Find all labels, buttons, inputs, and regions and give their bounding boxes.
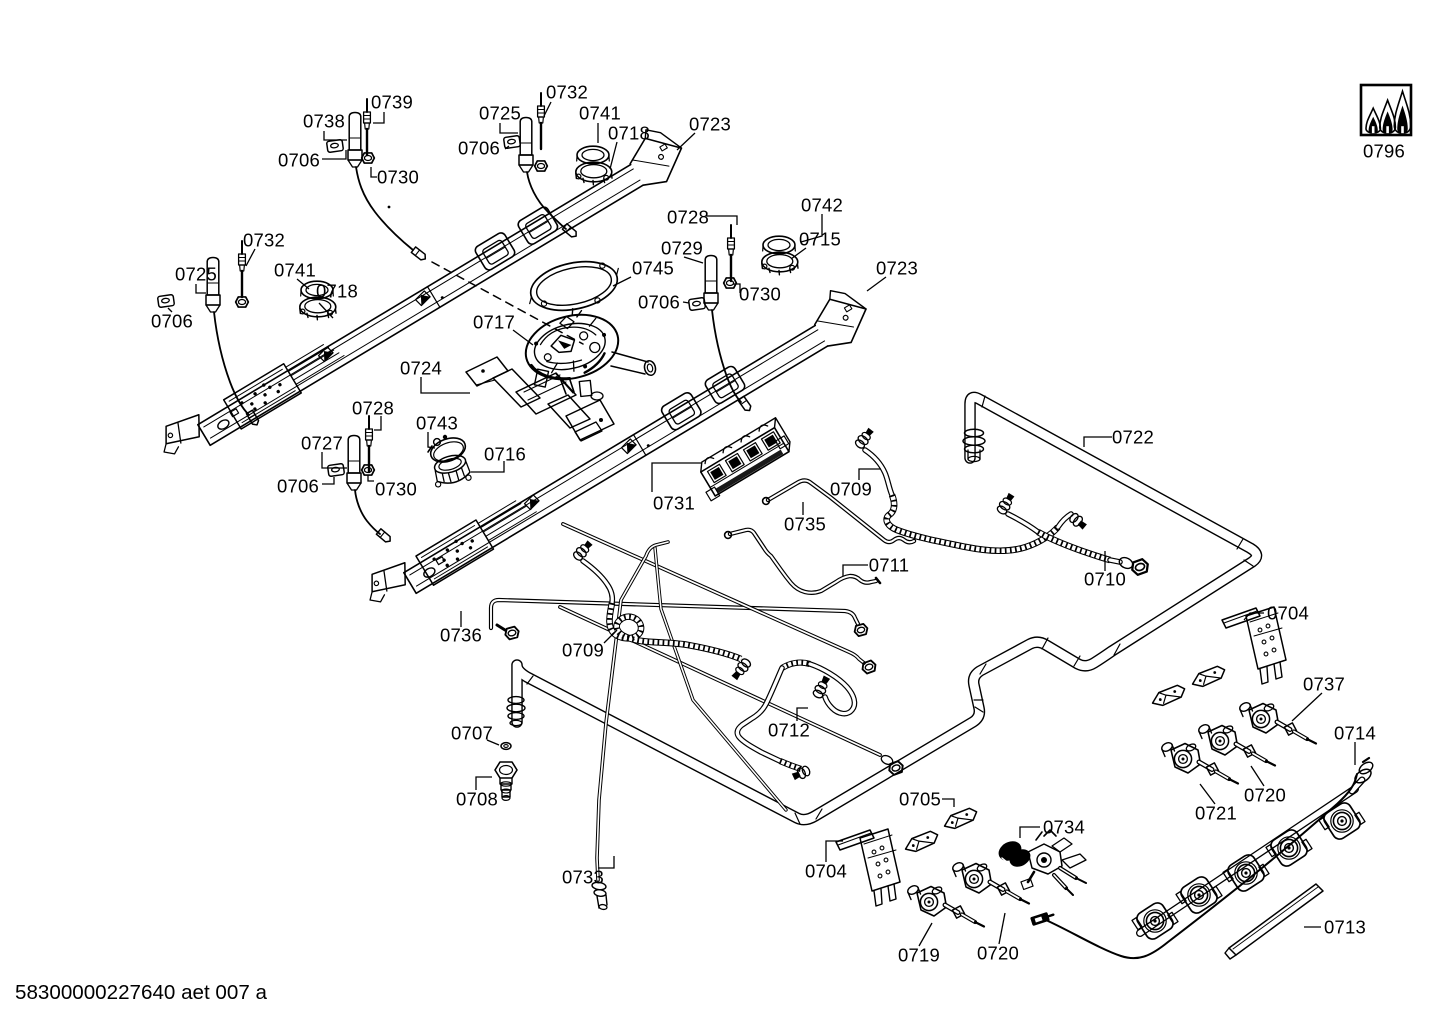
svg-text:0741: 0741: [274, 260, 316, 281]
svg-text:0732: 0732: [243, 230, 285, 251]
svg-text:0734: 0734: [1043, 817, 1085, 838]
svg-text:0704: 0704: [805, 861, 847, 882]
svg-text:0706: 0706: [458, 138, 500, 159]
svg-text:0730: 0730: [377, 167, 419, 188]
svg-text:0718: 0718: [316, 281, 358, 302]
svg-text:0713: 0713: [1324, 917, 1366, 938]
svg-text:0725: 0725: [175, 264, 217, 285]
svg-text:0720: 0720: [977, 943, 1019, 964]
svg-text:0717: 0717: [473, 312, 515, 333]
svg-text:0732: 0732: [546, 82, 588, 103]
svg-text:0735: 0735: [784, 514, 826, 535]
svg-text:0741: 0741: [579, 103, 621, 124]
svg-text:0742: 0742: [801, 195, 843, 216]
svg-text:0708: 0708: [456, 789, 498, 810]
svg-text:0711: 0711: [869, 555, 910, 576]
svg-text:0721: 0721: [1195, 803, 1237, 824]
svg-text:0727: 0727: [301, 433, 343, 454]
svg-text:0705: 0705: [899, 789, 941, 810]
svg-text:0722: 0722: [1112, 427, 1154, 448]
svg-text:0706: 0706: [278, 150, 320, 171]
svg-text:58300000227640 aet 007 a: 58300000227640 aet 007 a: [15, 981, 267, 1004]
svg-text:0733: 0733: [562, 867, 604, 888]
svg-text:0743: 0743: [416, 413, 458, 434]
svg-text:0720: 0720: [1244, 785, 1286, 806]
svg-text:0715: 0715: [799, 229, 841, 250]
svg-text:0730: 0730: [375, 479, 417, 500]
svg-text:0745: 0745: [632, 258, 674, 279]
svg-text:0706: 0706: [277, 476, 319, 497]
svg-text:0724: 0724: [400, 358, 442, 379]
svg-text:0729: 0729: [661, 238, 703, 259]
svg-text:0738: 0738: [303, 111, 345, 132]
svg-text:0736: 0736: [440, 625, 482, 646]
svg-text:0728: 0728: [667, 207, 709, 228]
svg-text:0710: 0710: [1084, 569, 1126, 590]
svg-text:0707: 0707: [451, 723, 493, 744]
svg-text:0719: 0719: [898, 945, 940, 966]
svg-text:0796: 0796: [1363, 141, 1405, 162]
svg-text:0730: 0730: [739, 284, 781, 305]
svg-text:0723: 0723: [689, 114, 731, 135]
svg-text:0709: 0709: [562, 640, 604, 661]
svg-text:0718: 0718: [608, 123, 650, 144]
svg-text:0716: 0716: [484, 444, 526, 465]
svg-text:0737: 0737: [1303, 674, 1345, 695]
svg-text:0704: 0704: [1267, 603, 1309, 624]
svg-text:0739: 0739: [371, 92, 413, 113]
svg-text:0712: 0712: [768, 720, 810, 741]
svg-text:0728: 0728: [352, 398, 394, 419]
svg-text:0706: 0706: [638, 292, 680, 313]
svg-text:0731: 0731: [653, 493, 695, 514]
svg-text:0706: 0706: [151, 311, 193, 332]
svg-text:0714: 0714: [1334, 723, 1376, 744]
svg-text:0725: 0725: [479, 103, 521, 124]
svg-text:0723: 0723: [876, 258, 918, 279]
svg-text:0709: 0709: [830, 479, 872, 500]
